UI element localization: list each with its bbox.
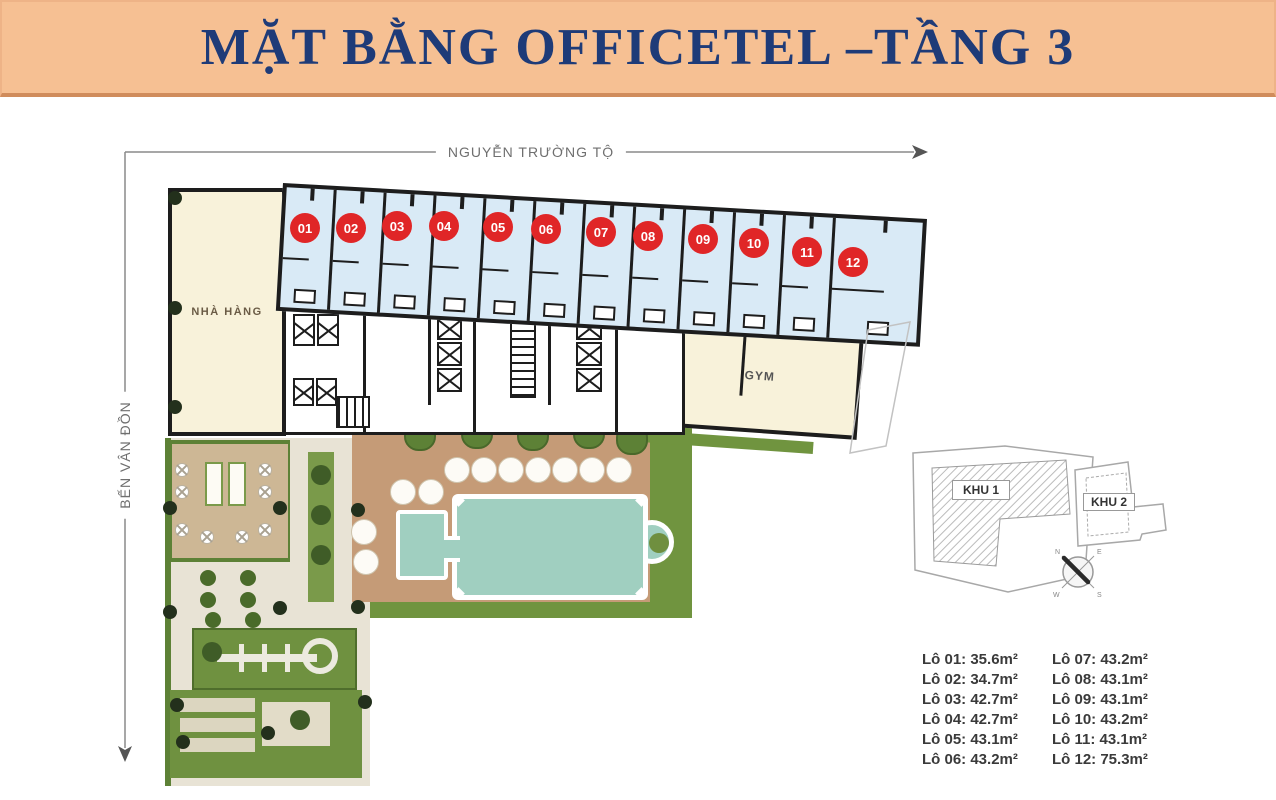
legend-item: Lô 07: 43.2m² (1052, 650, 1148, 670)
plant-icon (649, 533, 669, 553)
legend-item: Lô 09: 43.1m² (1052, 690, 1148, 710)
cafe-table-icon (258, 463, 272, 477)
planter-box (205, 462, 223, 506)
garden-path (239, 644, 244, 672)
cafe-table-icon (258, 485, 272, 499)
unit-badge-05: 05 (483, 212, 513, 242)
elevator-icon (293, 378, 314, 406)
pool-corner (452, 494, 465, 507)
page: MẶT BẰNG OFFICETEL –TẦNG 3 (0, 0, 1276, 800)
cafe-table-icon (258, 523, 272, 537)
legend-item: Lô 03: 42.7m² (922, 690, 1018, 710)
key-plan-zone1 (913, 446, 1093, 592)
core-wall (473, 313, 476, 435)
stairs-icon (336, 396, 370, 428)
legend-left-column: Lô 01: 35.6m² Lô 02: 34.7m² Lô 03: 42.7m… (922, 650, 1018, 770)
svg-text:W: W (1053, 592, 1060, 599)
pool-corner (635, 494, 648, 507)
garden-path (262, 644, 267, 672)
svg-text:E: E (1097, 549, 1102, 556)
garden-planter-strip (180, 738, 255, 752)
elevator-icon (437, 368, 462, 392)
unit-cell-12 (829, 218, 931, 343)
page-title: MẶT BẰNG OFFICETEL –TẦNG 3 (201, 18, 1075, 77)
unit-badge-11: 11 (792, 237, 822, 267)
column-dot (176, 735, 190, 749)
legend-right-column: Lô 07: 43.2m² Lô 08: 43.1m² Lô 09: 43.1m… (1052, 650, 1148, 770)
tree-icon (202, 642, 222, 662)
umbrella-icon (606, 457, 632, 483)
unit-badge-08: 08 (633, 221, 663, 251)
cafe-table-icon (200, 530, 214, 544)
umbrella-icon (390, 479, 416, 505)
garden-circle-feature (302, 638, 338, 674)
column-dot (163, 501, 177, 515)
unit-cell-01 (280, 187, 337, 310)
tree-icon (311, 465, 331, 485)
unit-cell-11 (779, 215, 836, 338)
garden-path (285, 644, 290, 672)
pool-corner (635, 587, 648, 600)
unit-badge-07: 07 (586, 217, 616, 247)
tree-icon (290, 710, 310, 730)
elevator-icon (576, 368, 602, 392)
umbrella-icon (351, 519, 377, 545)
zone2-label: KHU 2 (1083, 493, 1135, 511)
tree-icon (240, 592, 256, 608)
feature-garden (192, 628, 357, 690)
tree-icon (311, 505, 331, 525)
unit-cell-03 (380, 193, 437, 316)
legend-item: Lô 06: 43.2m² (922, 750, 1018, 770)
unit-badge-03: 03 (382, 211, 412, 241)
svg-text:N: N (1055, 549, 1060, 556)
planter-box (228, 462, 246, 506)
umbrella-icon (498, 457, 524, 483)
tree-icon (240, 570, 256, 586)
zone1-label: KHU 1 (952, 480, 1010, 500)
umbrella-icon (552, 457, 578, 483)
column-dot (168, 400, 182, 414)
pool-channel (444, 536, 460, 562)
unit-badge-01: 01 (290, 213, 320, 243)
core-wall (428, 313, 431, 405)
restaurant-room: NHÀ HÀNG (168, 188, 286, 436)
column-dot (273, 501, 287, 515)
garden-planter-strip (180, 698, 255, 712)
garden-planter-strip (180, 718, 255, 732)
legend-item: Lô 05: 43.1m² (922, 730, 1018, 750)
column-dot (261, 726, 275, 740)
street-label-top: NGUYỄN TRƯỜNG TỘ (436, 142, 626, 162)
legend-item: Lô 10: 43.2m² (1052, 710, 1148, 730)
compass-icon: N E S W (1053, 549, 1102, 599)
elevator-icon (437, 342, 462, 366)
restaurant-label: NHÀ HÀNG (191, 306, 262, 318)
umbrella-icon (471, 457, 497, 483)
unit-badge-04: 04 (429, 211, 459, 241)
legend-item: Lô 04: 42.7m² (922, 710, 1018, 730)
elevator-icon (317, 314, 339, 346)
stairs-icon (510, 320, 536, 398)
street-label-left: BẾN VÂN ĐỒN (115, 391, 135, 518)
cafe-table-icon (175, 485, 189, 499)
core-wall (615, 313, 618, 435)
svg-text:S: S (1097, 592, 1102, 599)
umbrella-icon (579, 457, 605, 483)
unit-badge-10: 10 (739, 228, 769, 258)
column-dot (273, 601, 287, 615)
umbrella-icon (525, 457, 551, 483)
pool-corner (452, 587, 465, 600)
legend-item: Lô 11: 43.1m² (1052, 730, 1148, 750)
unit-badge-06: 06 (531, 214, 561, 244)
tree-icon (245, 612, 261, 628)
unit-cell-02 (330, 190, 387, 313)
tree-icon (311, 545, 331, 565)
column-dot (351, 503, 365, 517)
umbrella-icon (418, 479, 444, 505)
floor-plan-canvas: NHÀ HÀNG GYM 01 02 03 04 05 06 0 (0, 100, 1276, 800)
elevator-icon (293, 314, 315, 346)
elevator-icon (316, 378, 337, 406)
column-dot (163, 605, 177, 619)
cafe-table-icon (175, 523, 189, 537)
unit-badge-09: 09 (688, 224, 718, 254)
title-banner: MẶT BẰNG OFFICETEL –TẦNG 3 (0, 0, 1276, 97)
cafe-table-icon (235, 530, 249, 544)
umbrella-icon (353, 549, 379, 575)
swimming-pool (452, 494, 648, 600)
tree-icon (205, 612, 221, 628)
column-dot (358, 695, 372, 709)
column-dot (168, 301, 182, 315)
column-dot (170, 698, 184, 712)
cafe-table-icon (175, 463, 189, 477)
column-dot (351, 600, 365, 614)
tree-icon (200, 570, 216, 586)
legend-item: Lô 01: 35.6m² (922, 650, 1018, 670)
gym-label: GYM (744, 368, 775, 384)
umbrella-icon (444, 457, 470, 483)
core-wall (548, 313, 551, 405)
unit-badge-12: 12 (838, 247, 868, 277)
legend-item: Lô 02: 34.7m² (922, 670, 1018, 690)
kids-pool (396, 510, 448, 580)
unit-badge-02: 02 (336, 213, 366, 243)
legend-item: Lô 12: 75.3m² (1052, 750, 1148, 770)
elevator-icon (576, 342, 602, 366)
legend-item: Lô 08: 43.1m² (1052, 670, 1148, 690)
column-dot (168, 191, 182, 205)
tree-icon (200, 592, 216, 608)
